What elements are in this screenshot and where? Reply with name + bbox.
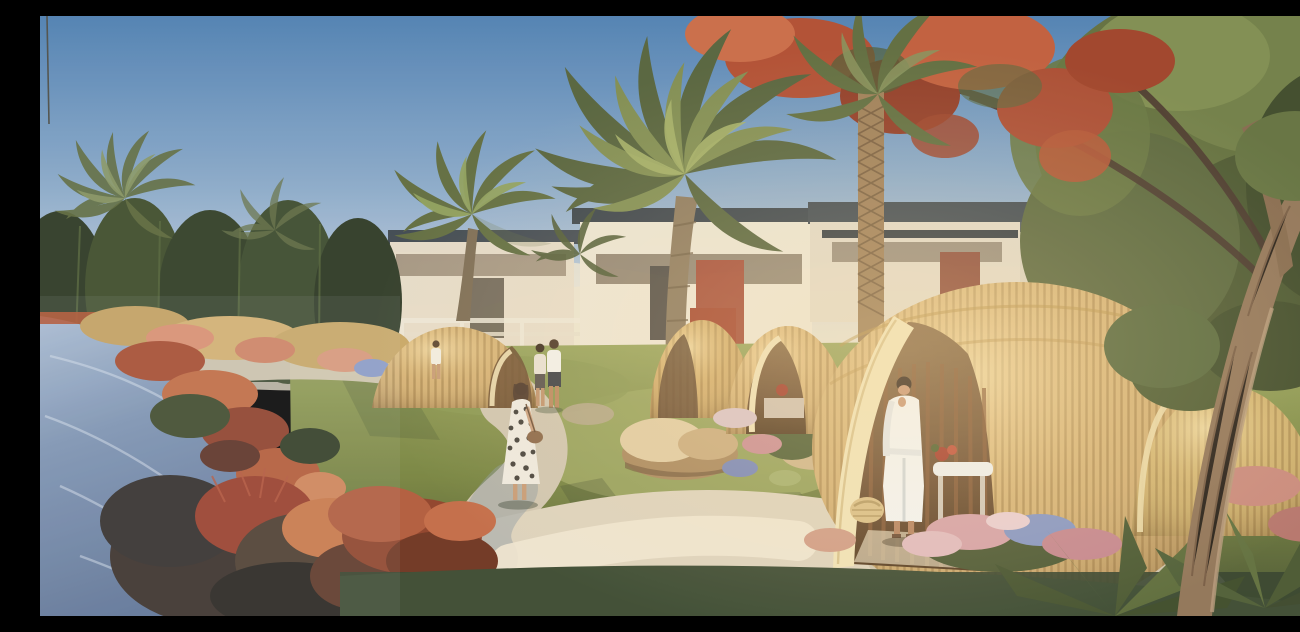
resort-garden-render [40, 16, 1300, 616]
light-overlays [40, 16, 1300, 616]
render-canvas [40, 16, 1300, 616]
